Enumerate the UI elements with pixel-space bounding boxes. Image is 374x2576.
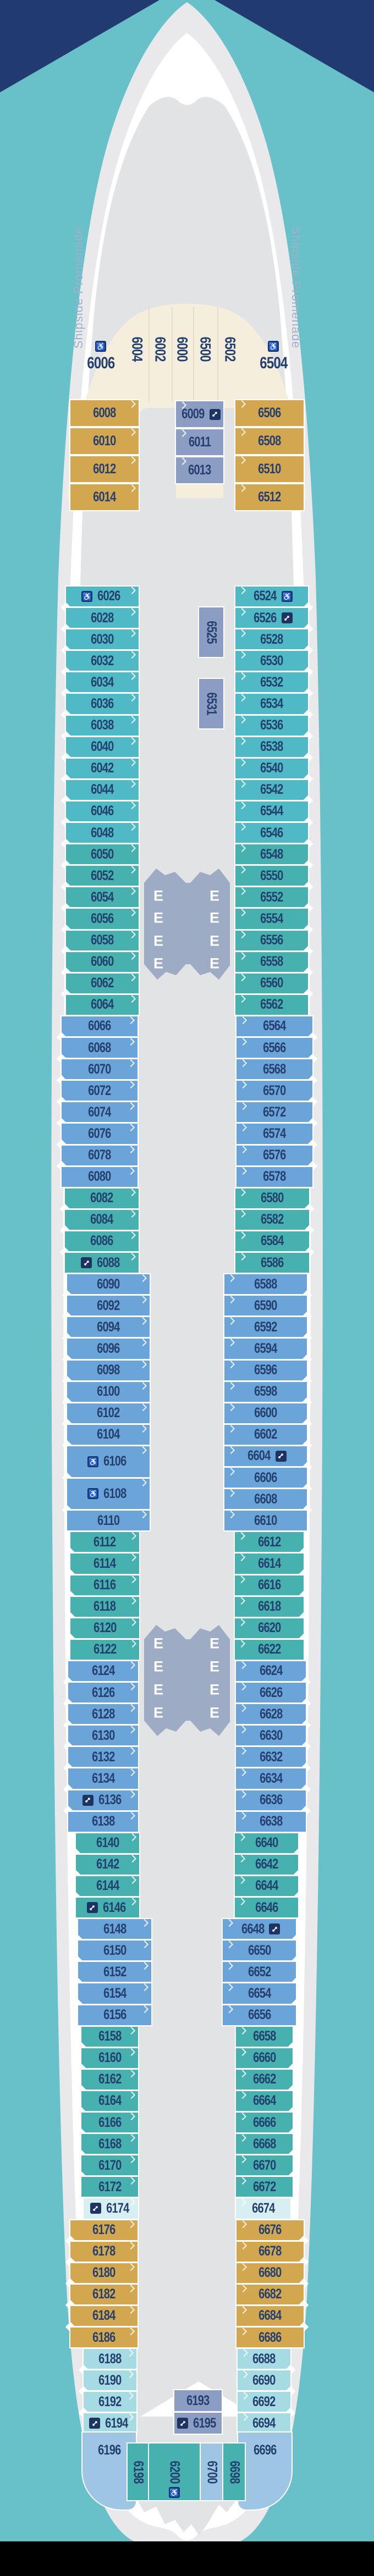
cabin-6606[interactable]: 6606	[224, 1468, 307, 1488]
cabin-6194[interactable]: 6194	[84, 2413, 136, 2433]
cabin-number: 6542	[260, 782, 283, 798]
cabin-number: 6524	[254, 588, 276, 604]
cabin-number: 6698	[226, 2461, 242, 2483]
cabin-6040[interactable]: 6040	[66, 737, 139, 757]
wheelchair-icon: ♿	[87, 1456, 98, 1467]
cabin-6096[interactable]: 6096	[67, 1339, 150, 1358]
cabin-6622[interactable]: 6622	[235, 1640, 304, 1660]
cabin-6510[interactable]: 6510	[235, 456, 304, 482]
cabin-number: 6068	[88, 1040, 111, 1056]
cabin-number: 6096	[97, 1341, 119, 1357]
cabin-number: 6102	[97, 1405, 119, 1421]
cabin-6070[interactable]: 6070	[62, 1059, 137, 1079]
cabin-6648[interactable]: 6648	[223, 1919, 296, 1939]
cabin-6074[interactable]: 6074	[62, 1102, 137, 1122]
cabin-number: 6572	[263, 1104, 285, 1120]
cabin-number: 6622	[258, 1641, 280, 1657]
fan-divider	[148, 307, 150, 401]
elevator-marker: E	[153, 1705, 163, 1722]
elevator-marker: E	[210, 910, 219, 927]
elevator-marker: E	[210, 933, 219, 950]
cabin-6190[interactable]: 6190	[84, 2370, 136, 2390]
cabin-6142[interactable]: 6142	[76, 1855, 139, 1875]
cabin-6011[interactable]: 6011	[176, 429, 223, 455]
cabin-6164[interactable]: 6164	[81, 2091, 138, 2111]
cabin-number: 6128	[92, 1706, 114, 1722]
cabin-6012[interactable]: 6012	[70, 456, 139, 482]
cabin-6042[interactable]: 6042	[66, 759, 139, 778]
cabin-6193[interactable]: 6193	[174, 2390, 222, 2411]
cabin-6684[interactable]: 6684	[237, 2306, 304, 2326]
cabin-6654[interactable]: 6654	[223, 1983, 296, 2003]
cabin-6120[interactable]: 6120	[70, 1618, 139, 1638]
cabin-6586[interactable]: 6586	[235, 1253, 309, 1273]
elevator-marker: E	[153, 1682, 163, 1699]
cabin-number: 6680	[258, 2265, 281, 2281]
cabin-6140[interactable]: 6140	[76, 1833, 139, 1853]
cabin-number: 6010	[93, 433, 116, 449]
cabin-6564[interactable]: 6564	[237, 1016, 312, 1036]
cabin-number: 6198	[130, 2461, 146, 2483]
cabin-6608[interactable]: 6608	[224, 1489, 307, 1509]
cabin-6056[interactable]: 6056	[66, 909, 139, 928]
cabin-number: 6042	[91, 760, 113, 776]
cabin-6162[interactable]: 6162	[81, 2070, 138, 2089]
cabin-number: 6502	[222, 337, 239, 362]
cabin-6540[interactable]: 6540	[235, 759, 308, 778]
cabin-6634[interactable]: 6634	[236, 1768, 306, 1788]
cabin-6670[interactable]: 6670	[236, 2155, 293, 2175]
cabin-6656[interactable]: 6656	[223, 2005, 296, 2025]
cabin-6038[interactable]: 6038	[66, 716, 139, 736]
cabin-6570[interactable]: 6570	[237, 1081, 312, 1101]
cabin-6000[interactable]: 6000	[171, 308, 193, 390]
cabin-6002[interactable]: 6002	[149, 308, 171, 390]
cabin-number: 6114	[94, 1556, 116, 1572]
cabin-6700[interactable]: 6700	[201, 2444, 222, 2500]
cabin-6662[interactable]: 6662	[236, 2070, 293, 2089]
elevator-marker: E	[210, 1705, 219, 1722]
cabin-number: 6656	[248, 2007, 271, 2023]
cabin-6116[interactable]: 6116	[70, 1576, 139, 1595]
cabin-6146[interactable]: 6146	[76, 1898, 139, 1917]
cabin-6082[interactable]: 6082	[65, 1189, 139, 1208]
promenade-label-starboard: Shipside Promenade	[289, 226, 303, 349]
cabin-6100[interactable]: 6100	[67, 1382, 150, 1402]
cabin-6126[interactable]: 6126	[68, 1683, 138, 1702]
cabin-number: 6168	[98, 2136, 121, 2152]
cabin-number: 6668	[253, 2136, 276, 2152]
cabin-6560[interactable]: 6560	[235, 974, 308, 993]
cabin-number: 6688	[252, 2351, 275, 2367]
cabin-6646[interactable]: 6646	[235, 1898, 298, 1917]
cabin-6184[interactable]: 6184	[70, 2306, 137, 2326]
cabin-6512[interactable]: 6512	[235, 484, 304, 510]
cabin-6106[interactable]: ♿6106	[67, 1446, 150, 1477]
cabin-number: 6092	[97, 1298, 119, 1314]
wheelchair-icon: ♿	[81, 591, 92, 602]
cabin-6658[interactable]: 6658	[236, 2027, 293, 2047]
cabin-6620[interactable]: 6620	[235, 1618, 304, 1638]
cabin-6144[interactable]: 6144	[76, 1876, 139, 1896]
cabin-6590[interactable]: 6590	[224, 1296, 307, 1315]
cabin-number: 6554	[260, 911, 283, 927]
cabin-6172[interactable]: 6172	[81, 2177, 138, 2197]
cabin-number: 6082	[90, 1190, 113, 1206]
cabin-6136[interactable]: 6136	[68, 1790, 138, 1810]
cabin-number: 6182	[92, 2286, 115, 2302]
cabin-number: 6046	[91, 803, 113, 819]
cabin-6572[interactable]: 6572	[237, 1102, 312, 1122]
cabin-6152[interactable]: 6152	[78, 1962, 151, 1982]
cabin-6544[interactable]: 6544	[235, 801, 308, 821]
cabin-6114[interactable]: 6114	[70, 1554, 139, 1573]
cabin-6552[interactable]: 6552	[235, 887, 308, 907]
cabin-6672[interactable]: 6672	[236, 2177, 293, 2197]
cabin-6592[interactable]: 6592	[224, 1317, 307, 1337]
cabin-6616[interactable]: 6616	[235, 1576, 304, 1595]
cabin-6576[interactable]: 6576	[237, 1146, 312, 1165]
cabin-6630[interactable]: 6630	[236, 1726, 306, 1745]
cabin-number: 6624	[260, 1663, 282, 1679]
cabin-6066[interactable]: 6066	[62, 1016, 137, 1036]
cabin-number: 6154	[103, 1986, 126, 2002]
cabin-number: 6646	[255, 1900, 278, 1916]
cabin-number: 6564	[263, 1018, 285, 1034]
cabin-number: 6014	[93, 489, 116, 505]
cabin-number: 6616	[258, 1577, 280, 1593]
cabin-number: 6560	[260, 975, 283, 991]
cabin-number: 6150	[103, 1943, 126, 1959]
cabin-number: 6026	[97, 588, 120, 604]
cabin-6558[interactable]: 6558	[235, 952, 308, 972]
connecting-rooms-icon	[90, 2203, 101, 2214]
cabin-6090[interactable]: 6090	[67, 1274, 150, 1294]
cabin-number: 6188	[98, 2351, 121, 2367]
cabin-6110[interactable]: 6110	[67, 1511, 150, 1530]
cabin-6668[interactable]: 6668	[236, 2134, 293, 2154]
cabin-number: 6612	[258, 1534, 280, 1550]
cabin-number: 6048	[91, 825, 113, 841]
cabin-number: 6626	[260, 1685, 282, 1701]
cabin-6644[interactable]: 6644	[235, 1876, 298, 1896]
cabin-6134[interactable]: 6134	[68, 1768, 138, 1788]
cabin-6064[interactable]: 6064	[66, 995, 139, 1015]
cabin-number: 6158	[98, 2028, 121, 2044]
cabin-number: 6628	[260, 1706, 282, 1722]
cabin-number: 6670	[253, 2158, 276, 2174]
cabin-number: 6694	[252, 2415, 275, 2431]
cabin-number: 6058	[91, 932, 113, 948]
cabin-number: 6180	[92, 2265, 115, 2281]
cabin-6666[interactable]: 6666	[236, 2113, 293, 2132]
cabin-6526[interactable]: 6526	[235, 608, 308, 628]
cabin-number: 6574	[263, 1126, 285, 1142]
cabin-number: 6660	[253, 2050, 276, 2066]
cabin-6650[interactable]: 6650	[223, 1941, 296, 1960]
cabin-6122[interactable]: 6122	[70, 1640, 139, 1660]
cabin-6698[interactable]: 6698	[223, 2444, 245, 2500]
cabin-6598[interactable]: 6598	[224, 1382, 307, 1402]
cabin-6032[interactable]: 6032	[66, 651, 139, 671]
cabin-number: 6566	[263, 1040, 285, 1056]
cabin-6150[interactable]: 6150	[78, 1941, 151, 1960]
cabin-6108[interactable]: ♿6108	[67, 1479, 150, 1510]
cabin-6562[interactable]: 6562	[235, 995, 308, 1015]
cabin-6638[interactable]: 6638	[236, 1812, 306, 1832]
cabin-number: 6676	[258, 2222, 281, 2238]
cabin-6594[interactable]: 6594	[224, 1339, 307, 1358]
cabin-6640[interactable]: 6640	[235, 1833, 298, 1853]
cabin-6528[interactable]: 6528	[235, 629, 308, 649]
cabin-6580[interactable]: 6580	[235, 1189, 309, 1208]
cabin-number: 6090	[97, 1276, 119, 1292]
cabin-6182[interactable]: 6182	[70, 2285, 137, 2304]
cabin-number: 6690	[252, 2373, 275, 2389]
cabin-6628[interactable]: 6628	[236, 1704, 306, 1724]
cabin-6030[interactable]: 6030	[66, 629, 139, 649]
cabin-6014[interactable]: 6014	[70, 484, 139, 510]
cabin-6174[interactable]: 6174	[84, 2198, 138, 2218]
cabin-6582[interactable]: 6582	[235, 1210, 309, 1230]
cabin-6692[interactable]: 6692	[238, 2392, 290, 2412]
cabin-6124[interactable]: 6124	[68, 1661, 138, 1681]
cabin-6525[interactable]: 6525	[199, 607, 223, 657]
cabin-6568[interactable]: 6568	[237, 1059, 312, 1079]
cabin-6534[interactable]: 6534	[235, 694, 308, 714]
cabin-6036[interactable]: 6036	[66, 694, 139, 714]
cabin-6178[interactable]: 6178	[70, 2242, 137, 2262]
cabin-number: 6120	[94, 1620, 116, 1636]
cabin-number: 6620	[258, 1620, 280, 1636]
cabin-6094[interactable]: 6094	[67, 1317, 150, 1337]
cabin-number: 6594	[254, 1341, 277, 1357]
cabin-number: 6193	[186, 2393, 209, 2409]
cabin-6694[interactable]: 6694	[238, 2413, 290, 2433]
cabin-6013[interactable]: 6013	[176, 457, 223, 483]
cabin-6626[interactable]: 6626	[236, 1683, 306, 1702]
cabin-6068[interactable]: 6068	[62, 1038, 137, 1058]
cabin-6010[interactable]: 6010	[70, 428, 139, 454]
cabin-6546[interactable]: 6546	[235, 823, 308, 843]
cabin-6678[interactable]: 6678	[237, 2242, 304, 2262]
cabin-6128[interactable]: 6128	[68, 1704, 138, 1724]
cabin-6076[interactable]: 6076	[62, 1124, 137, 1143]
cabin-6566[interactable]: 6566	[237, 1038, 312, 1058]
cabin-6084[interactable]: 6084	[65, 1210, 139, 1230]
cabin-6086[interactable]: 6086	[65, 1231, 139, 1251]
cabin-6058[interactable]: 6058	[66, 931, 139, 950]
cabin-number: 6672	[253, 2179, 276, 2195]
cabin-6664[interactable]: 6664	[236, 2091, 293, 2111]
cabin-number: 6076	[88, 1126, 111, 1142]
cabin-6198[interactable]: 6198	[128, 2444, 148, 2500]
cabin-number: 6664	[253, 2093, 276, 2109]
cabin-6186[interactable]: 6186	[70, 2328, 137, 2347]
wheelchair-icon: ♿	[282, 591, 293, 602]
cabin-6009[interactable]: 6009	[176, 401, 223, 427]
cabin-6588[interactable]: 6588	[224, 1274, 307, 1294]
cabin-number: 6178	[92, 2243, 115, 2259]
cabin-6154[interactable]: 6154	[78, 1983, 151, 2003]
cabin-6026[interactable]: ♿6026	[66, 587, 139, 606]
cabin-6618[interactable]: 6618	[235, 1597, 304, 1617]
cabin-6176[interactable]: 6176	[70, 2220, 137, 2240]
cabin-6602[interactable]: 6602	[224, 1425, 307, 1445]
cabin-6132[interactable]: 6132	[68, 1747, 138, 1767]
cabin-6532[interactable]: 6532	[235, 672, 308, 692]
cabin-6612[interactable]: 6612	[235, 1532, 304, 1552]
cabin-6600[interactable]: 6600	[224, 1403, 307, 1423]
cabin-6158[interactable]: 6158	[81, 2027, 138, 2047]
cabin-6502[interactable]: 6502	[219, 308, 241, 390]
cabin-number: 6176	[92, 2222, 115, 2238]
cabin-6530[interactable]: 6530	[235, 651, 308, 671]
cabin-6060[interactable]: 6060	[66, 952, 139, 972]
cabin-6688[interactable]: 6688	[238, 2349, 290, 2369]
cabin-6676[interactable]: 6676	[237, 2220, 304, 2240]
cabin-6054[interactable]: 6054	[66, 887, 139, 907]
cabin-6556[interactable]: 6556	[235, 931, 308, 950]
cabin-6104[interactable]: 6104	[67, 1425, 150, 1445]
cabin-6524[interactable]: 6524♿	[235, 587, 308, 606]
elevator-marker: E	[210, 1659, 219, 1676]
cabin-number: 6562	[260, 997, 283, 1013]
cabin-6195[interactable]: 6195	[174, 2413, 222, 2434]
cabin-number: 6678	[258, 2243, 281, 2259]
cabin-number: 6608	[254, 1491, 277, 1507]
cabin-number: 6136	[98, 1792, 121, 1808]
cabin-6531[interactable]: 6531	[199, 679, 223, 728]
cabin-6686[interactable]: 6686	[237, 2328, 304, 2347]
cabin-6680[interactable]: 6680	[237, 2263, 304, 2283]
cabin-number: 6526	[254, 610, 276, 626]
cabin-6048[interactable]: 6048	[66, 823, 139, 843]
cabin-number: 6634	[260, 1771, 282, 1787]
cabin-number: 6550	[260, 868, 283, 884]
cabin-6536[interactable]: 6536	[235, 716, 308, 736]
cabin-number: 6556	[260, 932, 283, 948]
cabin-6166[interactable]: 6166	[81, 2113, 138, 2132]
cabin-6052[interactable]: 6052	[66, 866, 139, 886]
cabin-6578[interactable]: 6578	[237, 1167, 312, 1187]
cabin-number: 6011	[189, 434, 211, 450]
cabin-6138[interactable]: 6138	[68, 1812, 138, 1832]
cabin-6200[interactable]: 6200♿	[149, 2444, 200, 2500]
cabin-6118[interactable]: 6118	[70, 1597, 139, 1617]
cabin-6072[interactable]: 6072	[62, 1081, 137, 1101]
cabin-6610[interactable]: 6610	[224, 1511, 307, 1530]
cabin-6028[interactable]: 6028	[66, 608, 139, 628]
cabin-6098[interactable]: 6098	[67, 1361, 150, 1380]
connecting-rooms-icon	[87, 1902, 98, 1913]
cabin-6660[interactable]: 6660	[236, 2048, 293, 2068]
cabin-number: 6648	[241, 1921, 264, 1937]
cabin-6092[interactable]: 6092	[67, 1296, 150, 1315]
cabin-6080[interactable]: 6080	[62, 1167, 137, 1187]
cabin-6574[interactable]: 6574	[237, 1124, 312, 1143]
cabin-6500[interactable]: 6500	[194, 308, 216, 390]
cabin-6088[interactable]: 6088	[65, 1253, 139, 1273]
cabin-number: 6116	[94, 1577, 116, 1593]
cabin-6102[interactable]: 6102	[67, 1403, 150, 1423]
cabin-6008[interactable]: 6008	[70, 400, 139, 426]
cabin-6632[interactable]: 6632	[236, 1747, 306, 1767]
cabin-number: 6190	[98, 2373, 121, 2389]
cabin-6130[interactable]: 6130	[68, 1726, 138, 1745]
cabin-6034[interactable]: 6034	[66, 672, 139, 692]
cabin-6044[interactable]: 6044	[66, 780, 139, 800]
cabin-number: 6166	[98, 2115, 121, 2131]
cabin-6642[interactable]: 6642	[235, 1855, 298, 1875]
cabin-6148[interactable]: 6148	[78, 1919, 151, 1939]
cabin-6180[interactable]: 6180	[70, 2263, 137, 2283]
cabin-6584[interactable]: 6584	[235, 1231, 309, 1251]
cabin-number: 6666	[253, 2115, 276, 2131]
cabin-6604[interactable]: 6604	[224, 1446, 307, 1466]
cabin-6046[interactable]: 6046	[66, 801, 139, 821]
cabin-6674[interactable]: 6674	[236, 2198, 290, 2218]
cabin-6542[interactable]: 6542	[235, 780, 308, 800]
cabin-number: 6070	[88, 1062, 111, 1077]
cabin-6548[interactable]: 6548	[235, 844, 308, 864]
cabin-number: 6156	[103, 2007, 126, 2023]
cabin-number: 6506	[258, 405, 280, 421]
cabin-number: 6644	[255, 1878, 278, 1894]
cabin-6538[interactable]: 6538	[235, 737, 308, 757]
cabin-number: 6106	[103, 1453, 126, 1469]
cabin-6682[interactable]: 6682	[237, 2285, 304, 2304]
cabin-6112[interactable]: 6112	[70, 1532, 139, 1552]
cabin-number: 6186	[92, 2330, 115, 2346]
cabin-6050[interactable]: 6050	[66, 844, 139, 864]
cabin-6078[interactable]: 6078	[62, 1146, 137, 1165]
cabin-6156[interactable]: 6156	[78, 2005, 151, 2025]
cabin-6506[interactable]: 6506	[235, 400, 304, 426]
cabin-6192[interactable]: 6192	[84, 2392, 136, 2412]
cabin-6596[interactable]: 6596	[224, 1361, 307, 1380]
cabin-number: 6534	[260, 696, 283, 712]
cabin-6160[interactable]: 6160	[81, 2048, 138, 2068]
cabin-6624[interactable]: 6624	[236, 1661, 306, 1681]
cabin-number: 6596	[254, 1362, 277, 1378]
cabin-6690[interactable]: 6690	[238, 2370, 290, 2390]
cabin-6170[interactable]: 6170	[81, 2155, 138, 2175]
cabin-6508[interactable]: 6508	[235, 428, 304, 454]
cabin-number: 6072	[88, 1083, 111, 1099]
cabin-number: 6000	[174, 337, 191, 362]
cabin-6614[interactable]: 6614	[235, 1554, 304, 1573]
cabin-number: 6195	[193, 2415, 216, 2431]
cabin-6652[interactable]: 6652	[223, 1962, 296, 1982]
cabin-number: 6094	[97, 1319, 119, 1335]
cabin-number: 6510	[258, 461, 280, 477]
cabin-number: 6088	[97, 1255, 119, 1271]
cabin-number: 6658	[253, 2028, 276, 2044]
cabin-6168[interactable]: 6168	[81, 2134, 138, 2154]
cabin-number: 6508	[258, 433, 280, 449]
cabin-6636[interactable]: 6636	[236, 1790, 306, 1810]
cabin-number: 6632	[260, 1749, 282, 1765]
cabin-number: 6558	[260, 954, 283, 970]
cabin-number: 6654	[248, 1986, 271, 2002]
cabin-number: 6006	[87, 354, 114, 373]
cabin-6550[interactable]: 6550	[235, 866, 308, 886]
cabin-number: 6050	[91, 847, 113, 863]
cabin-6188[interactable]: 6188	[84, 2349, 136, 2369]
cabin-6554[interactable]: 6554	[235, 909, 308, 928]
cabin-6062[interactable]: 6062	[66, 974, 139, 993]
